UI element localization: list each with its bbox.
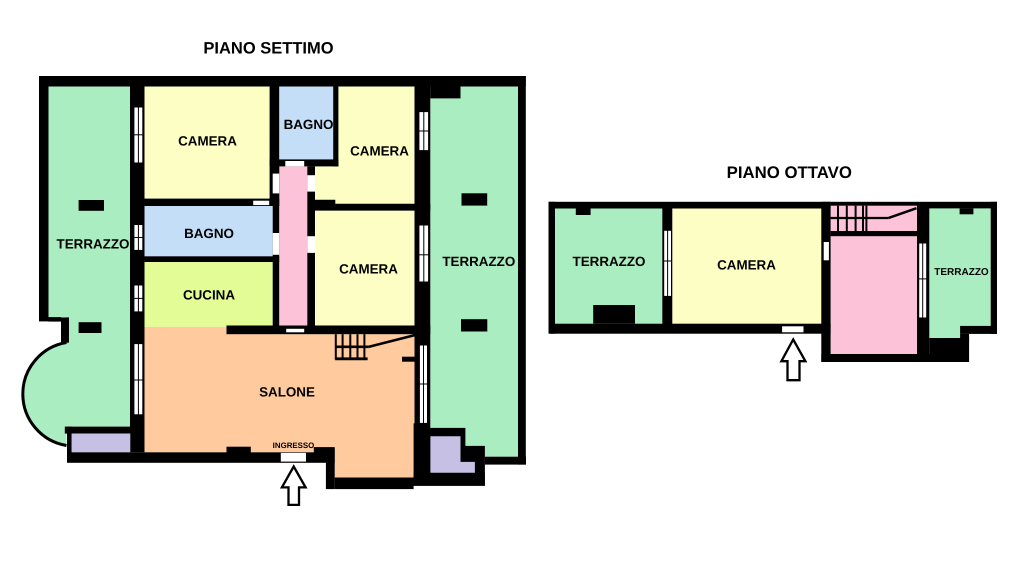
svg-text:BAGNO: BAGNO bbox=[184, 226, 234, 241]
svg-text:CUCINA: CUCINA bbox=[183, 288, 235, 303]
svg-text:TERRAZZO: TERRAZZO bbox=[442, 254, 515, 269]
svg-text:BAGNO: BAGNO bbox=[284, 117, 334, 132]
svg-text:TERRAZZO: TERRAZZO bbox=[573, 254, 646, 269]
svg-text:CAMERA: CAMERA bbox=[717, 258, 776, 273]
svg-text:SALONE: SALONE bbox=[259, 385, 315, 400]
svg-text:PIANO SETTIMO: PIANO SETTIMO bbox=[203, 40, 333, 58]
svg-text:CAMERA: CAMERA bbox=[350, 143, 409, 158]
svg-text:PIANO OTTAVO: PIANO OTTAVO bbox=[727, 163, 852, 182]
svg-text:TERRAZZO: TERRAZZO bbox=[934, 267, 989, 278]
svg-text:CAMERA: CAMERA bbox=[178, 134, 237, 149]
svg-text:TERRAZZO: TERRAZZO bbox=[57, 237, 130, 252]
svg-text:INGRESSO: INGRESSO bbox=[273, 441, 315, 450]
svg-text:CAMERA: CAMERA bbox=[339, 261, 398, 276]
